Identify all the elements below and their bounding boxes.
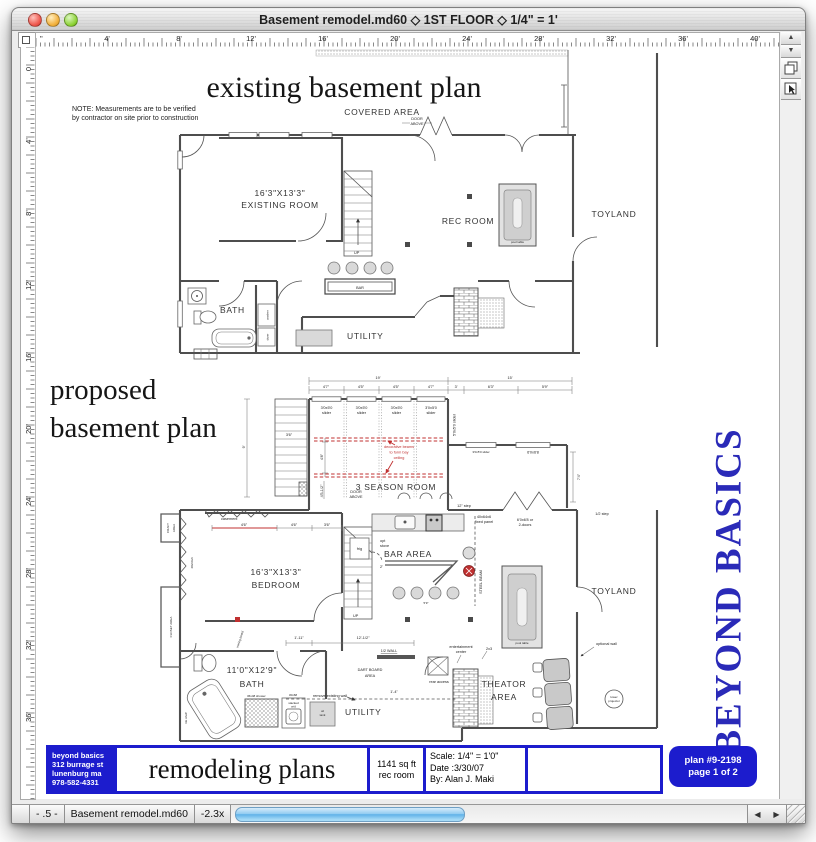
- cursor-icon: [784, 82, 798, 96]
- svg-text:4'8": 4'8": [320, 453, 324, 460]
- svg-text:12" step: 12" step: [457, 504, 471, 508]
- bath-existing: BATH: [188, 288, 256, 347]
- svg-text:slider: slider: [426, 411, 436, 415]
- svg-text:": ": [40, 34, 43, 43]
- svg-text:12': 12': [24, 280, 33, 290]
- svg-text:decorative beams: decorative beams: [384, 445, 414, 449]
- svg-text:rear access: rear access: [429, 680, 449, 684]
- covered-area-label: COVERED AREA: [344, 107, 419, 117]
- svg-text:20': 20': [24, 424, 33, 434]
- svg-text:2': 2': [380, 565, 383, 569]
- theater-label-2: AREA: [491, 692, 517, 702]
- company-info: beyond basics312 burrage st lunenburg ma…: [49, 748, 117, 791]
- dimensions-top: 4'7" 4'5" 4'5" 4'7" 19' 3' 6'3" 5'9" 15': [309, 376, 572, 394]
- svg-text:to form bay: to form bay: [390, 451, 409, 455]
- svg-text:w/d: w/d: [291, 705, 296, 709]
- chimney-proposed: [453, 669, 478, 727]
- svg-text:20': 20': [390, 34, 400, 43]
- note-line-2: by contractor on site prior to construct…: [72, 115, 199, 122]
- svg-text:4'5": 4'5": [393, 385, 400, 389]
- svg-text:fixed panel: fixed panel: [475, 520, 494, 524]
- origin-square-icon: [22, 36, 30, 44]
- svg-text:40': 40': [750, 34, 760, 43]
- svg-text:3'6": 3'6": [286, 433, 293, 437]
- svg-text:3'0x5'0: 3'0x5'0: [425, 406, 437, 410]
- svg-text:12'-1/2": 12'-1/2": [357, 636, 370, 640]
- sheet-title: remodeling plans: [117, 748, 370, 791]
- svg-text:4'6": 4'6": [241, 523, 248, 527]
- svg-text:ironing board: ironing board: [235, 630, 244, 648]
- scroll-right-icon[interactable]: ▶: [773, 810, 779, 819]
- svg-text:ABOVE: ABOVE: [349, 495, 363, 499]
- svg-text:ceiling: ceiling: [394, 456, 405, 460]
- svg-text:32': 32': [24, 640, 33, 650]
- svg-text:16': 16': [24, 352, 33, 362]
- bedroom: casement 40x64x6 16'3"X13'3" BEDROOM 4'6…: [180, 510, 342, 622]
- floor-plan-drawing: existing basement plan NOTE: Measurement…: [36, 47, 779, 799]
- svg-text:32': 32': [606, 34, 616, 43]
- svg-text:6'0x6'8: 6'0x6'8: [527, 451, 539, 455]
- svg-text:4'7": 4'7": [428, 385, 435, 389]
- ruler-horizontal-ticks: 4'8'12'16'20'24'28'32'36'40'": [36, 33, 779, 47]
- svg-text:frig: frig: [357, 547, 362, 551]
- title-block: beyond basics312 burrage st lunenburg ma…: [46, 745, 663, 794]
- svg-text:2x3: 2x3: [486, 647, 492, 651]
- bath-existing-label: BATH: [220, 305, 245, 315]
- furnace: [296, 330, 332, 346]
- beyond-basics-banner: BEYOND BASICS: [708, 427, 751, 754]
- svg-text:15': 15': [508, 376, 513, 380]
- svg-text:center: center: [456, 650, 467, 654]
- svg-text:CRAFT: CRAFT: [166, 523, 170, 533]
- scroll-left-icon[interactable]: ◀: [754, 810, 760, 819]
- pages-icon: [784, 61, 798, 75]
- svg-text:1'-11": 1'-11": [294, 636, 304, 640]
- svg-text:1/2 WALL: 1/2 WALL: [381, 649, 398, 653]
- svg-text:5'9": 5'9": [424, 601, 429, 605]
- proposed-title-1: proposed: [50, 374, 157, 406]
- svg-text:1'-4": 1'-4": [390, 690, 398, 694]
- svg-text:4'5": 4'5": [358, 385, 365, 389]
- utility-existing-label: UTILITY: [347, 331, 384, 341]
- svg-text:40x64x6: 40x64x6: [477, 515, 491, 519]
- craft-nook: CRAFT AREA: [161, 514, 180, 542]
- svg-text:7'4": 7'4": [577, 473, 581, 480]
- plan-number-box: plan #9-2198page 1 of 2: [669, 746, 757, 787]
- svg-text:AREA: AREA: [365, 674, 376, 678]
- svg-text:5'9": 5'9": [542, 385, 549, 389]
- svg-text:36': 36': [678, 34, 688, 43]
- svg-text:4'5-1/2": 4'5-1/2": [320, 484, 324, 497]
- zoom-control[interactable]: -2.3x: [195, 805, 231, 823]
- svg-text:4': 4': [104, 34, 110, 43]
- svg-text:8': 8': [176, 34, 182, 43]
- svg-text:3'0x5'0: 3'0x5'0: [356, 406, 368, 410]
- svg-text:36': 36': [24, 712, 33, 722]
- svg-text:stove: stove: [380, 544, 389, 548]
- svg-text:36x48 shower: 36x48 shower: [247, 694, 266, 698]
- bar-area-label: BAR AREA: [384, 549, 432, 559]
- pool-table-existing: pool table: [499, 184, 536, 246]
- resize-grip[interactable]: [787, 805, 805, 823]
- existing-plan: existing basement plan NOTE: Measurement…: [72, 50, 657, 359]
- svg-text:6'3": 6'3": [488, 385, 495, 389]
- pages-tool-button[interactable]: [781, 58, 801, 79]
- svg-text:6'0x6'8 or: 6'0x6'8 or: [517, 518, 534, 522]
- svg-text:slider: slider: [357, 411, 367, 415]
- proposed-title-2: basement plan: [50, 412, 217, 444]
- ruler-vertical[interactable]: 04'8'12'16'20'24'28'32'36': [20, 47, 36, 800]
- svg-text:2-doors: 2-doors: [519, 523, 532, 527]
- theater-label-1: THEATOR: [482, 679, 527, 689]
- closet-nook: CLOSET AREA: [161, 587, 196, 667]
- vertical-scrollbar[interactable]: ▲ ▼: [779, 32, 802, 799]
- dryer-label: dryer: [266, 334, 270, 341]
- svg-text:CLOSET AREA: CLOSET AREA: [169, 617, 173, 638]
- svg-text:slider: slider: [322, 411, 332, 415]
- app-window: Basement remodel.md60 ◇ 1ST FLOOR ◇ 1/4"…: [11, 7, 806, 824]
- scale-control[interactable]: - .5 -: [29, 805, 65, 823]
- utility-proposed-label: UTILITY: [345, 707, 382, 717]
- theater-area: rear access entertainment center 2x3 THE…: [425, 642, 623, 730]
- svg-text:24': 24': [462, 34, 472, 43]
- bar-label: BAR: [356, 286, 364, 290]
- svg-text:4'7": 4'7": [323, 385, 330, 389]
- svg-text:30x68: 30x68: [289, 693, 298, 697]
- washer-label: washer: [266, 310, 270, 320]
- svg-text:16': 16': [318, 34, 328, 43]
- svg-text:3'0x5'0: 3'0x5'0: [321, 406, 333, 410]
- svg-text:28': 28': [534, 34, 544, 43]
- svg-text:3': 3': [455, 385, 458, 389]
- empty-cell: [528, 748, 660, 791]
- svg-text:tank: tank: [320, 713, 326, 717]
- svg-text:DOOR: DOOR: [350, 490, 362, 494]
- svg-text:5'0x5'0 slider: 5'0x5'0 slider: [453, 413, 457, 436]
- svg-text:entertainment: entertainment: [449, 645, 473, 649]
- drawing-canvas[interactable]: existing basement plan NOTE: Measurement…: [35, 47, 779, 799]
- scale-date-by: Scale: 1/4" = 1'0"Date :3/30/07By: Alan …: [426, 748, 528, 791]
- toyland-existing-label: TOYLAND: [592, 209, 637, 219]
- pool-table-label: pool table: [511, 240, 524, 244]
- svg-text:remove existing wall: remove existing wall: [313, 694, 347, 698]
- svg-text:STEEL BEAM: STEEL BEAM: [479, 570, 483, 594]
- svg-text:9': 9': [242, 445, 246, 448]
- svg-text:optional wall: optional wall: [596, 642, 617, 646]
- stairs-existing: UP: [344, 171, 372, 256]
- svg-text:12': 12': [246, 34, 256, 43]
- svg-text:4'6": 4'6": [291, 523, 298, 527]
- bedroom-label: BEDROOM: [252, 580, 301, 590]
- svg-text:1/2 step: 1/2 step: [595, 512, 609, 516]
- svg-text:3'6": 3'6": [324, 523, 331, 527]
- up-label: UP: [354, 251, 360, 255]
- season-room-label: 3 SEASON ROOM: [356, 482, 436, 492]
- ruler-vertical-ticks: 04'8'12'16'20'24'28'32'36': [21, 47, 35, 799]
- status-bar: - .5 - Basement remodel.md60 -2.3x ◀ ▶: [12, 804, 805, 823]
- horizontal-scroll-thumb[interactable]: [235, 807, 465, 822]
- svg-text:AREA: AREA: [172, 524, 176, 532]
- svg-text:pool table: pool table: [515, 641, 528, 645]
- proposed-plan: proposed basement plan 4'7" 4'5" 4'5" 4'…: [50, 374, 657, 742]
- bath-proposed-label: BATH: [240, 679, 265, 689]
- window-titlebar[interactable]: Basement remodel.md60 ◇ 1ST FLOOR ◇ 1/4"…: [12, 8, 805, 31]
- recliners: [543, 658, 574, 730]
- svg-text:24': 24': [24, 496, 33, 506]
- door-above-label: DOOR: [411, 117, 423, 121]
- square-footage: 1141 sq ftrec room: [370, 748, 426, 791]
- ruler-origin[interactable]: [18, 32, 36, 48]
- bar-area: frig opt stove BAR AREA 5'9" 2' STEEL BE…: [350, 514, 483, 622]
- bedroom-dim: 16'3"X13'3": [250, 567, 301, 577]
- bar-existing: BAR: [325, 262, 395, 294]
- window-title: Basement remodel.md60 ◇ 1ST FLOOR ◇ 1/4"…: [12, 12, 805, 27]
- deck-edge: [316, 50, 568, 56]
- svg-text:UP: UP: [353, 614, 359, 618]
- svg-text:tile shelf: tile shelf: [184, 712, 188, 723]
- stairs-season: 3'6": [275, 399, 307, 496]
- svg-text:3'0x5'0 slider: 3'0x5'0 slider: [472, 450, 489, 454]
- scroll-down-icon[interactable]: ▼: [781, 45, 801, 58]
- svg-text:slider: slider: [392, 411, 402, 415]
- svg-text:ABOVE: ABOVE: [410, 122, 424, 126]
- svg-text:DART BOARD: DART BOARD: [358, 668, 383, 672]
- scroll-up-icon[interactable]: ▲: [781, 32, 801, 45]
- svg-text:19': 19': [376, 376, 381, 380]
- svg-text:casement: casement: [221, 517, 238, 521]
- svg-text:40x64x6: 40x64x6: [190, 557, 194, 569]
- existing-room-label: EXISTING ROOM: [241, 200, 319, 210]
- rec-room-label: REC ROOM: [442, 216, 494, 226]
- svg-text:28': 28': [24, 568, 33, 578]
- washer-dryer: washer dryer: [258, 304, 275, 346]
- note-line-1: NOTE: Measurements are to be verified: [72, 106, 196, 113]
- svg-text:3'0x5'0: 3'0x5'0: [391, 406, 403, 410]
- existing-room-dim: 16'3"X13'3": [254, 188, 305, 198]
- svg-text:4': 4': [24, 138, 33, 144]
- svg-text:projector: projector: [608, 699, 620, 703]
- svg-text:0: 0: [24, 67, 33, 71]
- svg-text:opt: opt: [380, 539, 386, 543]
- chimney-existing: [454, 288, 504, 336]
- bath-dim: 11'0"X12'9": [227, 665, 277, 675]
- svg-text:8': 8': [24, 210, 33, 216]
- filename-menu[interactable]: Basement remodel.md60: [65, 805, 195, 823]
- ruler-horizontal[interactable]: 4'8'12'16'20'24'28'32'36'40'": [35, 32, 779, 48]
- drag-tool-button[interactable]: [781, 79, 801, 100]
- existing-plan-title: existing basement plan: [207, 71, 482, 104]
- horizontal-scrollbar[interactable]: [231, 805, 748, 823]
- pool-table-proposed: pool table: [502, 566, 542, 648]
- toyland-proposed-label: TOYLAND: [592, 586, 637, 596]
- existing-room: 16'3"X13'3" EXISTING ROOM: [219, 138, 342, 241]
